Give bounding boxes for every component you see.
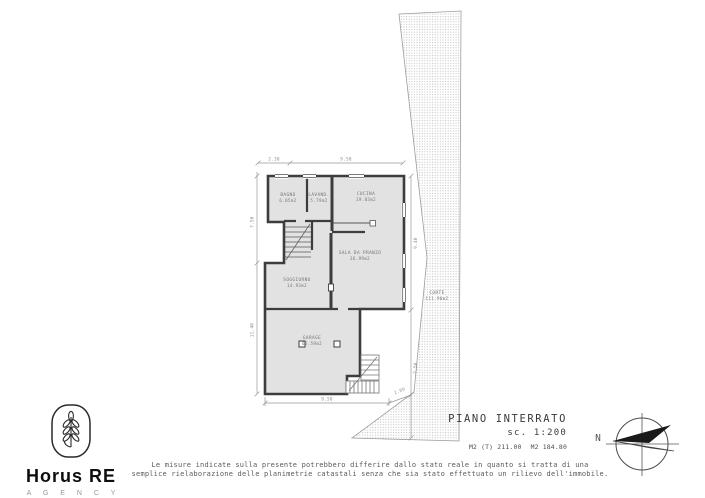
building-outline: [265, 176, 404, 394]
dim-bottom-right: 2.00: [393, 386, 406, 396]
dim-top: 9.50: [340, 157, 352, 163]
compass-north-label: N: [595, 433, 601, 444]
drawing-sheet: 2.30 9.50 7.50 11.40 9.40 7.50 9.50 2.00…: [0, 0, 705, 498]
dim-left-upper: 7.50: [250, 216, 256, 228]
room-area-bagno: 6.05m2: [279, 198, 296, 203]
room-area-garage: 62.59m2: [302, 341, 322, 346]
agency-logo: Horus RE A G E N C Y: [21, 402, 121, 497]
logo-subtitle: A G E N C Y: [21, 490, 121, 497]
disclaimer-line-1: Le misure indicate sulla presente potreb…: [35, 461, 705, 470]
plan-areas: M2 (T) 211.00 M2 184.80: [447, 443, 567, 451]
plan-scale: sc. 1:200: [447, 428, 567, 438]
room-area-sala-da-pranzo: 36.99m2: [350, 256, 370, 261]
room-area-cucina: 19.03m2: [356, 197, 376, 202]
plan-title: PIANO INTERRATO: [447, 413, 567, 425]
area-secondary: M2 184.80: [531, 443, 567, 451]
dim-left-lower: 11.40: [250, 323, 256, 338]
dim-bottom: 9.50: [321, 397, 333, 403]
room-area-lavanderia: 5.79m2: [310, 198, 327, 203]
dim-right-upper: 9.40: [413, 237, 419, 249]
dim-right-lower: 7.50: [413, 362, 419, 374]
disclaimer-line-2: semplice rielaborazione delle planimetri…: [35, 470, 705, 479]
disclaimer-text: Le misure indicate sulla presente potreb…: [35, 461, 705, 479]
area-total: M2 (T) 211.00: [469, 443, 522, 451]
room-area-soggiorno: 14.93m2: [287, 283, 307, 288]
wheat-emblem-icon: [21, 402, 121, 460]
room-area-corte: 111.90m2: [426, 296, 449, 301]
title-block: PIANO INTERRATO sc. 1:200 M2 (T) 211.00 …: [447, 413, 567, 451]
dim-top-left: 2.30: [268, 157, 280, 163]
